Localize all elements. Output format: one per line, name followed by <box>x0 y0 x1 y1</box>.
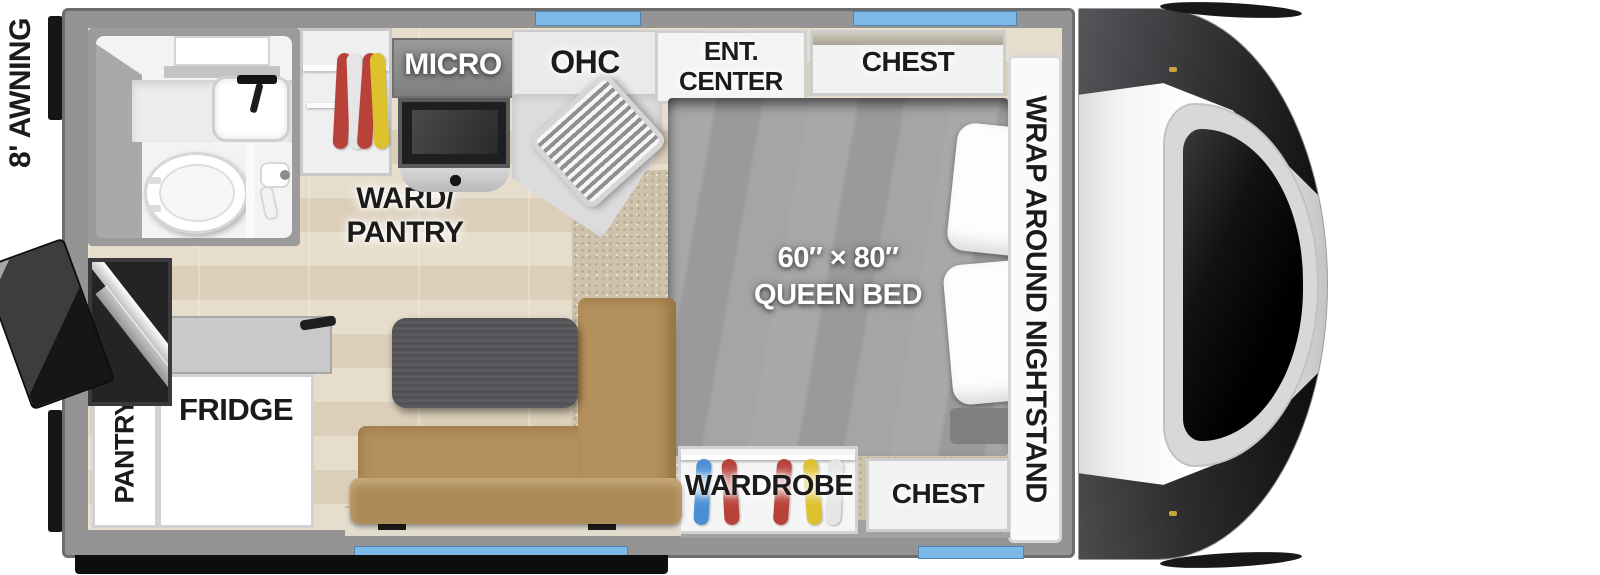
truck-bed-rail <box>75 555 668 574</box>
shower-head-dot <box>280 170 290 180</box>
bed-size-label: 60″ × 80″ <box>668 240 1008 277</box>
burner-knob <box>450 175 461 186</box>
ohc-label: OHC <box>512 44 658 81</box>
ent-center-line2: CENTER <box>655 66 807 96</box>
bathroom <box>88 28 300 246</box>
window-bottom-chest <box>918 546 1024 559</box>
awning-arm-bottom <box>48 410 63 532</box>
toilet-hinge <box>149 177 161 184</box>
bathroom-divider <box>246 144 255 238</box>
marker-light <box>1169 511 1177 516</box>
awning-arm-top <box>48 16 63 120</box>
chest-bottom-label: CHEST <box>866 478 1010 510</box>
sofa-front-cushion <box>350 478 682 524</box>
ward-pantry-label: WARD/ PANTRY <box>320 182 490 250</box>
window-top-bed <box>853 11 1017 26</box>
wardrobe-label: WARDROBE <box>664 470 874 503</box>
faucet-handle <box>249 83 263 114</box>
fridge-label: FRIDGE <box>158 392 314 428</box>
awning-label: 8' AWNING <box>2 8 40 178</box>
microwave <box>398 98 510 168</box>
toilet <box>144 152 248 234</box>
pantry-label: PANTRY <box>110 399 141 504</box>
chest-top-lip <box>813 33 1003 45</box>
front-cap <box>1076 4 1340 566</box>
front-cap-body <box>1078 8 1328 560</box>
window-top-kitchen <box>535 11 641 26</box>
ward-pantry-closet <box>300 28 392 176</box>
toilet-seat <box>159 164 235 222</box>
toilet-hinge <box>149 205 161 212</box>
bathroom-cabinet <box>174 36 270 66</box>
floorplan-scene: 8' AWNING <box>0 0 1600 575</box>
sofa-table <box>392 318 578 408</box>
bathroom-sink <box>212 76 290 142</box>
ward-pantry-line2: PANTRY <box>320 216 490 250</box>
marker-light <box>1169 67 1177 72</box>
bathroom-floor <box>96 36 292 238</box>
ent-center-label: ENT. CENTER <box>655 36 807 96</box>
bed-type-label: QUEEN BED <box>668 277 1008 314</box>
wrap-around-nightstand: WRAP AROUND NIGHTSTAND <box>1008 55 1062 543</box>
ent-center-line1: ENT. <box>655 36 807 66</box>
microwave-glass <box>412 110 498 154</box>
micro-label: MICRO <box>392 48 514 82</box>
bed-label: 60″ × 80″ QUEEN BED <box>668 240 1008 314</box>
nightstand-label: WRAP AROUND NIGHTSTAND <box>1019 95 1052 502</box>
chest-top-label: CHEST <box>810 46 1006 78</box>
shower-wand-handle <box>259 185 280 221</box>
shower-head <box>260 162 290 188</box>
stove-burners <box>400 168 510 192</box>
